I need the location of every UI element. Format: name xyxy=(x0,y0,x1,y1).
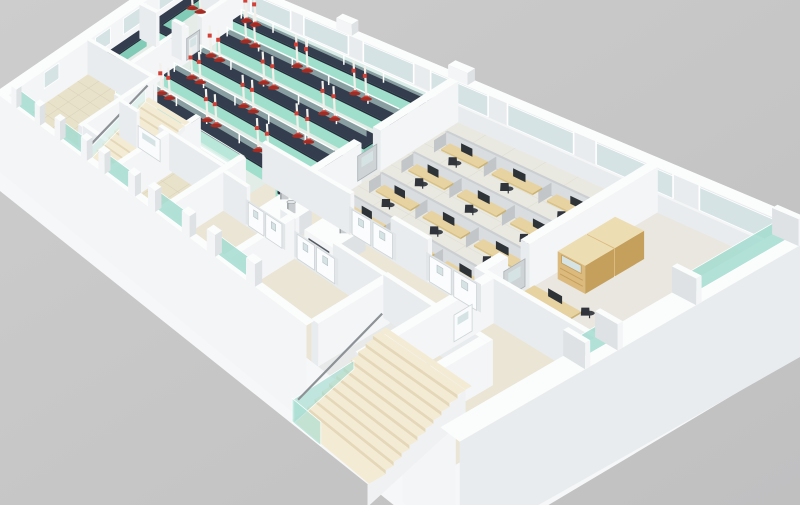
floorplan-scene xyxy=(0,0,800,505)
lab-floorplan-3d-render xyxy=(0,0,800,505)
small-lab-divider-b xyxy=(172,18,186,61)
